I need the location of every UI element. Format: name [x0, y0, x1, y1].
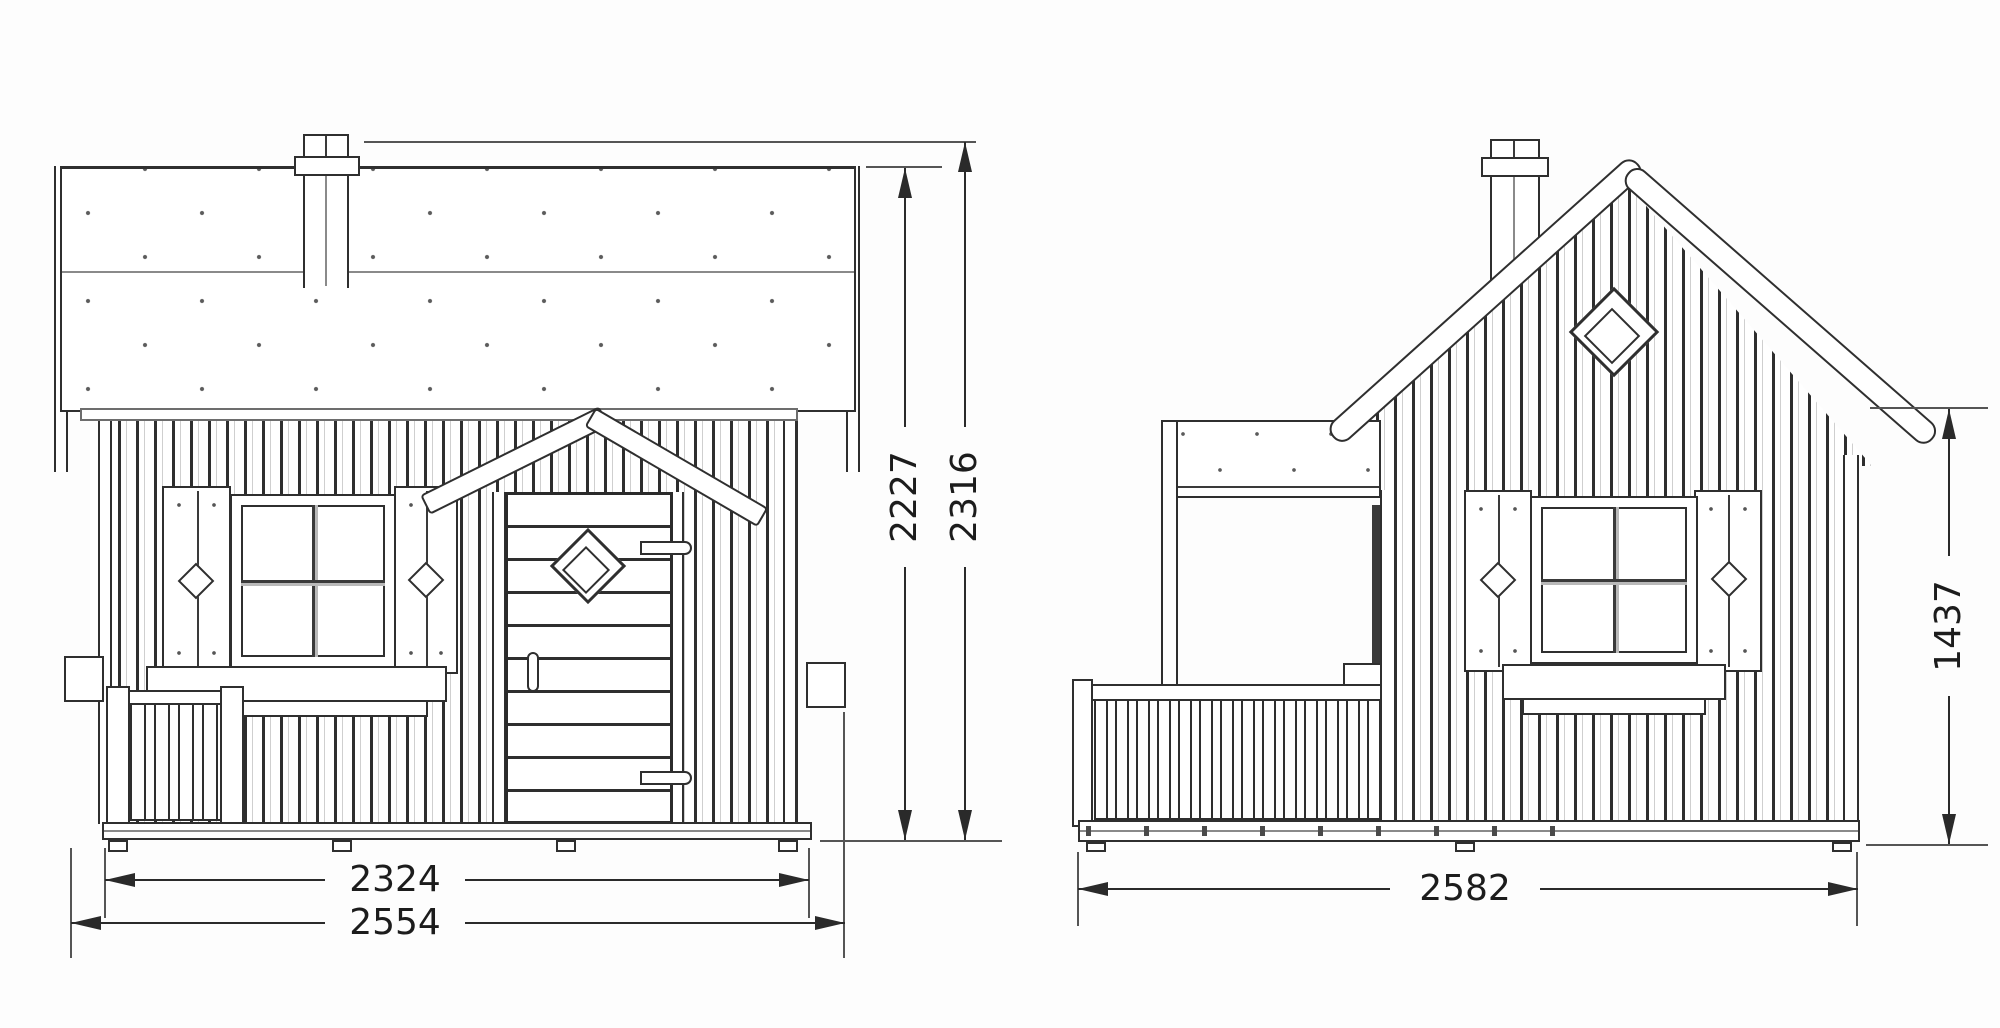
side-fence-balusters [1094, 701, 1380, 820]
ext-1437-bottom [1866, 844, 1988, 846]
side-window-box-lip [1522, 698, 1706, 715]
side-chimney-top [1490, 139, 1540, 159]
side-chimney-cap [1481, 157, 1549, 177]
arrow-2582-right [1828, 882, 1858, 896]
ext-1437-top [1870, 407, 1988, 409]
side-front-wall-edge [1380, 490, 1396, 823]
side-window-box [1502, 664, 1726, 700]
side-foot-2 [1455, 842, 1475, 852]
side-fence-post [1072, 679, 1093, 827]
side-deck-ticks [1086, 826, 1586, 836]
arrow-2582-left [1078, 882, 1108, 896]
side-fence-rail [1090, 684, 1382, 701]
side-right-corner-trim [1843, 455, 1859, 823]
arrow-1437-bottom [1942, 814, 1956, 844]
side-window-mullion-h [1541, 579, 1687, 582]
playhouse-technical-drawing: 2227 2316 2324 2554 [0, 0, 2000, 1028]
side-window [1530, 496, 1698, 664]
arrow-1437-top [1942, 409, 1956, 439]
side-chimney-top-line [1513, 141, 1515, 157]
porch-post [1161, 420, 1178, 690]
dim-label-1437: 1437 [1930, 556, 1968, 696]
side-foot-3 [1832, 842, 1852, 852]
dim-label-2582: 2582 [1390, 870, 1540, 908]
side-foot-1 [1086, 842, 1106, 852]
porch-roof-lower-line [1165, 486, 1379, 488]
side-view: 2582 1437 [0, 0, 2000, 1028]
